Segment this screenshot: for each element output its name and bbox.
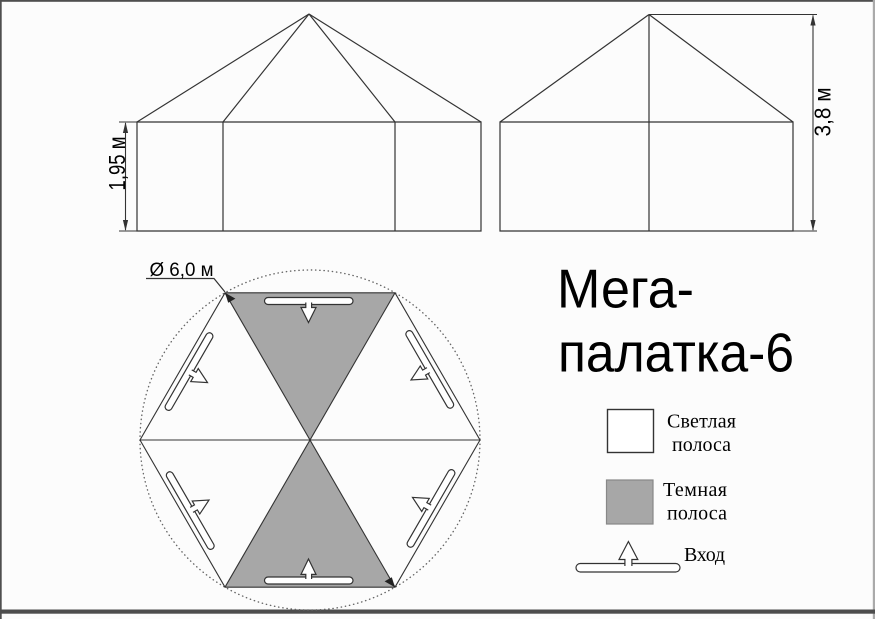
svg-text:3,8 м: 3,8 м (810, 88, 836, 137)
svg-text:Темная: Темная (663, 479, 727, 501)
svg-text:Мега-: Мега- (557, 258, 694, 320)
svg-text:полоса: полоса (667, 503, 727, 525)
svg-text:1,95 м: 1,95 м (104, 137, 130, 191)
svg-text:Светлая: Светлая (667, 411, 736, 433)
svg-text:полоса: полоса (672, 434, 731, 456)
svg-text:Ø 6,0 м: Ø 6,0 м (150, 259, 214, 281)
svg-text:палатка-6: палатка-6 (558, 322, 794, 384)
svg-text:Вход: Вход (684, 544, 725, 566)
